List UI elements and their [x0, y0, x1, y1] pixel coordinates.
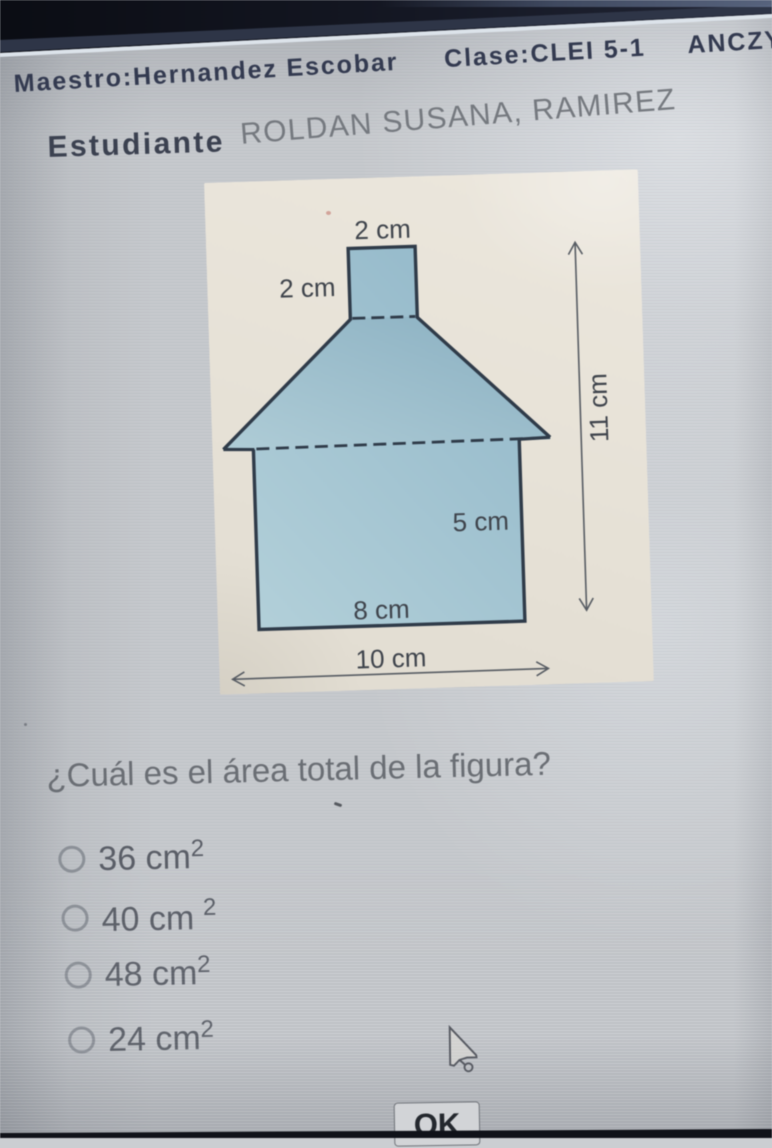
svg-text:10 cm: 10 cm: [355, 642, 427, 674]
svg-text:2 cm: 2 cm: [279, 272, 336, 304]
svg-text:5 cm: 5 cm: [452, 506, 509, 538]
svg-text:8 cm: 8 cm: [353, 594, 410, 626]
svg-text:2 cm: 2 cm: [354, 214, 411, 246]
svg-text:11 cm: 11 cm: [582, 373, 614, 443]
